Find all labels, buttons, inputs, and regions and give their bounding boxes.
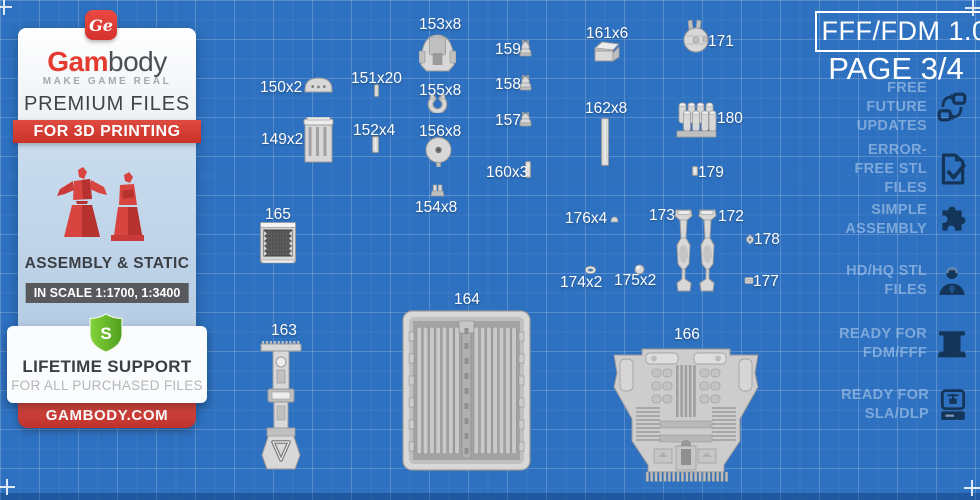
part-label-161x6: 161x6: [586, 25, 628, 43]
part-label-171: 171: [708, 33, 734, 51]
part-model-153x8: [419, 33, 456, 73]
gambody-logo-monogram: Ge: [85, 10, 117, 40]
part-label-179: 179: [698, 164, 724, 182]
premium-files-title: PREMIUM FILES: [18, 93, 196, 116]
part-label-151x20: 151x20: [351, 70, 402, 88]
feature-free-future-updates: FREE FUTURE UPDATES: [830, 79, 968, 136]
registration-cross-bottom-left: [0, 479, 15, 495]
part-label-162x8: 162x8: [585, 100, 627, 118]
feature-ready-fdm: READY FOR FDM/FFF: [830, 325, 968, 363]
part-label-174x2: 174x2: [560, 274, 602, 292]
part-label-173: 173: [649, 207, 675, 225]
feature-ready-sla: READY FOR SLA/DLP: [830, 386, 968, 424]
part-label-177: 177: [753, 273, 779, 291]
scale-badge: IN SCALE 1:1700, 1:3400: [26, 283, 189, 303]
figures-panel: ASSEMBLY & STATIC IN SCALE 1:1700, 1:340…: [18, 143, 196, 327]
part-label-158: 158: [495, 76, 521, 94]
part-label-157: 157: [495, 112, 521, 130]
part-model-173: [673, 209, 694, 292]
part-label-166: 166: [674, 326, 700, 344]
part-label-150x2: 150x2: [260, 79, 302, 97]
part-label-172: 172: [718, 208, 744, 226]
registration-cross-bottom-right: [964, 480, 980, 496]
brand-bold: Gam: [47, 46, 108, 77]
part-model-150x2: [304, 77, 333, 93]
registration-cross-top-left: [0, 0, 12, 15]
part-model-174x2: [585, 266, 596, 274]
puzzle-icon: [936, 204, 968, 236]
part-label-159: 159: [495, 41, 521, 59]
sync-icon: [936, 91, 968, 123]
part-model-176x4: [610, 216, 619, 223]
part-label-152x4: 152x4: [353, 122, 395, 140]
part-model-163: [259, 338, 303, 470]
part-model-149x2: [303, 117, 334, 164]
part-label-164: 164: [454, 291, 480, 309]
part-model-171: [683, 20, 709, 53]
feature-label: READY FOR SLA/DLP: [837, 386, 929, 424]
brand-tagline: MAKE GAME REAL: [18, 76, 196, 87]
feature-label: SIMPLE ASSEMBLY: [835, 201, 927, 239]
part-model-172: [695, 209, 718, 292]
support-title: LIFETIME SUPPORT: [7, 357, 207, 377]
part-model-162x8: [601, 118, 609, 166]
fdm-printer-icon: [936, 328, 968, 360]
part-label-175x2: 175x2: [614, 272, 656, 290]
for-3d-printing-ribbon: FOR 3D PRINTING: [13, 120, 201, 143]
feature-label: HD/HQ STL FILES: [835, 262, 927, 300]
document-check-icon: [936, 153, 968, 185]
red-figurines-illustration: [57, 165, 157, 249]
feature-simple-assembly: SIMPLE ASSEMBLY: [830, 201, 968, 239]
part-model-165: [260, 222, 296, 264]
part-label-153x8: 153x8: [419, 16, 461, 34]
support-subtitle: FOR ALL PURCHASED FILES: [7, 378, 207, 393]
part-label-180: 180: [717, 110, 743, 128]
part-label-163: 163: [271, 322, 297, 340]
part-label-149x2: 149x2: [261, 131, 303, 149]
part-model-166: [612, 345, 760, 484]
figure-icon: [936, 265, 968, 297]
part-label-154x8: 154x8: [415, 199, 457, 217]
part-model-180: [676, 101, 717, 138]
sla-printer-icon: [938, 389, 968, 421]
brand-rest: body: [108, 46, 167, 77]
feature-label: FREE FUTURE UPDATES: [835, 79, 927, 136]
bottom-edge-strip: [0, 493, 980, 500]
gambody-com-link[interactable]: GAMBODY.COM: [18, 403, 196, 428]
brand-card: Gambody MAKE GAME REAL PREMIUM FILES: [18, 28, 196, 120]
part-model-154x8: [429, 184, 446, 197]
part-label-176x4: 176x4: [565, 210, 607, 228]
part-label-155x8: 155x8: [419, 82, 461, 100]
feature-error-free-stl: ERROR-FREE STL FILES: [830, 141, 968, 198]
assembly-static-title: ASSEMBLY & STATIC: [18, 255, 196, 273]
brand-wordmark: Gambody: [18, 46, 196, 78]
feature-hd-hq-stl: HD/HQ STL FILES: [830, 262, 968, 300]
feature-label: ERROR-FREE STL FILES: [835, 141, 927, 198]
format-badge-label: FFF/FDM 1.0: [822, 16, 980, 47]
part-label-156x8: 156x8: [419, 123, 461, 141]
feature-label: READY FOR FDM/FFF: [835, 325, 927, 363]
shield-letter: S: [100, 324, 111, 343]
format-badge: FFF/FDM 1.0: [815, 11, 980, 52]
part-label-165: 165: [265, 206, 291, 224]
part-label-178: 178: [754, 231, 780, 249]
part-model-164: [402, 310, 531, 471]
part-label-160x3: 160x3: [486, 164, 528, 182]
part-model-156x8: [424, 137, 453, 167]
shield-icon: S: [88, 313, 124, 353]
